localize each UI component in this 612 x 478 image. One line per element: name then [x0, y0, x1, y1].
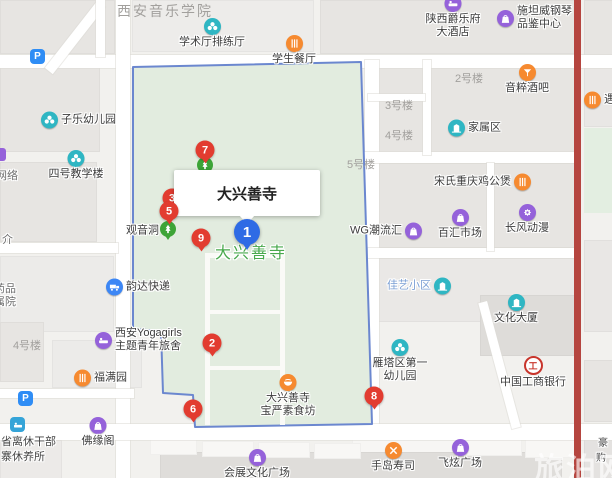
- poi-label: 会展文化广场: [224, 467, 290, 478]
- poi-label: 西安Yogagirls主题青年旅舍: [115, 327, 182, 353]
- temple-path: [205, 310, 285, 314]
- gear-icon: [519, 204, 536, 221]
- poi-label: WG潮流汇: [350, 225, 402, 238]
- poi-label: 中国工商银行: [500, 376, 566, 389]
- bowl-icon: [280, 374, 297, 391]
- area-label-building2: 2号楼: [455, 70, 483, 86]
- info-window[interactable]: 大兴善寺: [174, 170, 320, 216]
- shopping-bag-icon: [405, 223, 422, 240]
- shopping-bag-icon: [452, 439, 469, 456]
- bed-icon: [95, 332, 112, 349]
- poi-fumanyuan[interactable]: 福满园: [74, 370, 127, 387]
- poi-yincui-bar[interactable]: 音粹酒吧: [505, 64, 549, 95]
- marker-8[interactable]: 8: [365, 387, 384, 406]
- poi-label: 学生餐厅: [272, 53, 316, 66]
- marker-5[interactable]: 5: [160, 202, 179, 221]
- poi-label: 百汇市场: [438, 227, 482, 240]
- selected-marker-1[interactable]: 1: [234, 219, 260, 245]
- poi-teaching-building4[interactable]: 四号教学楼: [49, 150, 104, 181]
- poi-culture-tower[interactable]: 文化大厦: [494, 294, 538, 325]
- poi-sushi-restaurant[interactable]: 手岛寿司: [371, 442, 415, 473]
- poi-feixuan-plaza[interactable]: 飞炫广场: [438, 439, 482, 470]
- poi-label: 佛缘阁: [82, 435, 115, 448]
- shopping-bag-icon: [90, 417, 107, 434]
- poi-foyuange[interactable]: 佛缘阁: [82, 417, 115, 448]
- poi-label: 四号教学楼: [49, 168, 104, 181]
- poi-label: 文化大厦: [494, 312, 538, 325]
- flower-icon: [392, 339, 409, 356]
- poi-exhibition-plaza[interactable]: 会展文化广场: [224, 449, 290, 478]
- area-label-building4: 4号楼: [385, 127, 413, 143]
- poi-baihui-market[interactable]: 百汇市场: [438, 209, 482, 240]
- poi-label: 陕西爵乐府大酒店: [426, 13, 481, 39]
- poi-label: 长风动漫: [505, 222, 549, 235]
- clipped-label-xiuyangsuo1: 省离休干部: [1, 433, 56, 449]
- poi-family-area[interactable]: 家属区: [448, 120, 501, 137]
- bed-icon: [445, 0, 462, 12]
- clipped-label-wangluo: 网络: [0, 167, 18, 183]
- poi-label: 手岛寿司: [371, 460, 415, 473]
- temple-path: [205, 366, 285, 370]
- poi-label: 遇: [604, 94, 612, 107]
- shopping-bag-icon: [497, 10, 514, 27]
- poi-label: 福满园: [94, 372, 127, 385]
- restaurant-icon: [286, 35, 303, 52]
- poi-label: 音粹酒吧: [505, 82, 549, 95]
- shopping-bag-icon: [249, 449, 266, 466]
- truck-icon: [106, 279, 123, 296]
- poi-yoga-hostel[interactable]: 西安Yogagirls主题青年旅舍: [95, 327, 182, 353]
- poi-temple-vegetarian[interactable]: 大兴善寺宝严素食坊: [261, 374, 316, 418]
- poi-icbc-bank[interactable]: 工 中国工商银行: [500, 356, 566, 389]
- poi-wg-fashion[interactable]: WG潮流汇: [350, 223, 422, 240]
- marker-7[interactable]: 7: [196, 141, 215, 160]
- clipped-poi-icon: [0, 148, 6, 161]
- building-icon: [448, 120, 465, 137]
- parking-icon[interactable]: P: [18, 391, 33, 406]
- poi-zile-kindergarten[interactable]: 子乐幼儿园: [41, 112, 116, 129]
- poi-jiayi-community[interactable]: 佳艺小区: [387, 278, 451, 295]
- poi-label: 宋氏重庆鸡公煲: [434, 176, 511, 189]
- marker-6[interactable]: 6: [184, 400, 203, 419]
- poi-label: 佳艺小区: [387, 280, 431, 293]
- area-label-building5: 5号楼: [347, 156, 375, 172]
- poi-guanyin-cave[interactable]: 观音洞: [126, 225, 159, 238]
- marker-2[interactable]: 2: [203, 334, 222, 353]
- clipped-label-xiuyangsuo2: 寨休养所: [1, 448, 45, 464]
- chopsticks-icon: [385, 442, 402, 459]
- poi-label: 雁塔区第一幼儿园: [373, 357, 428, 383]
- poi-label: 家属区: [468, 122, 501, 135]
- poi-label: 大兴善寺宝严素食坊: [261, 392, 316, 418]
- poi-songshi-restaurant[interactable]: 宋氏重庆鸡公煲: [434, 174, 531, 191]
- poi-label: 学术厅排练厅: [179, 36, 245, 49]
- poi-yunda-express[interactable]: 韵达快递: [106, 279, 170, 296]
- poi-steinway-center[interactable]: 施坦威钢琴品鉴中心: [497, 5, 572, 31]
- restaurant-icon: [584, 92, 601, 109]
- area-label-building3: 3号楼: [385, 97, 413, 113]
- building-icon: [434, 278, 451, 295]
- cocktail-icon: [519, 64, 536, 81]
- marker-9[interactable]: 9: [192, 229, 211, 248]
- poi-yanta-kindergarten[interactable]: 雁塔区第一幼儿园: [373, 339, 428, 383]
- hotel-icon[interactable]: [10, 417, 25, 432]
- clipped-label-shuyuan: 属院: [0, 293, 16, 309]
- poi-label: 韵达快递: [126, 281, 170, 294]
- poi-label: 飞炫广场: [438, 457, 482, 470]
- poi-juelefu-hotel[interactable]: 陕西爵乐府大酒店: [426, 0, 481, 39]
- flower-icon: [41, 112, 58, 129]
- flower-icon: [68, 150, 85, 167]
- watermark: 旅泊网: [534, 444, 612, 478]
- poi-label: 观音洞: [126, 225, 159, 238]
- poi-clipped-right[interactable]: 遇: [584, 92, 612, 109]
- poi-label: 子乐幼儿园: [61, 114, 116, 127]
- poi-label: 施坦威钢琴品鉴中心: [517, 5, 572, 31]
- poi-student-canteen[interactable]: 学生餐厅: [272, 35, 316, 66]
- parking-icon[interactable]: P: [30, 49, 45, 64]
- poi-rehearsal-hall[interactable]: 学术厅排练厅: [179, 18, 245, 49]
- area-label-building4b: 4号楼: [13, 337, 41, 353]
- map-canvas[interactable]: 西安音乐学院 2号楼 3号楼 4号楼 5号楼 4号楼 网络 介 药品 属院 省离…: [0, 0, 612, 478]
- clipped-label-jie: 介: [2, 231, 13, 247]
- restaurant-icon: [74, 370, 91, 387]
- restaurant-icon: [514, 174, 531, 191]
- shopping-bag-icon: [452, 209, 469, 226]
- poi-changfeng-anime[interactable]: 长风动漫: [505, 204, 549, 235]
- flower-icon: [204, 18, 221, 35]
- info-window-title: 大兴善寺: [217, 183, 277, 204]
- building-icon: [508, 294, 525, 311]
- bank-icon: 工: [524, 356, 543, 375]
